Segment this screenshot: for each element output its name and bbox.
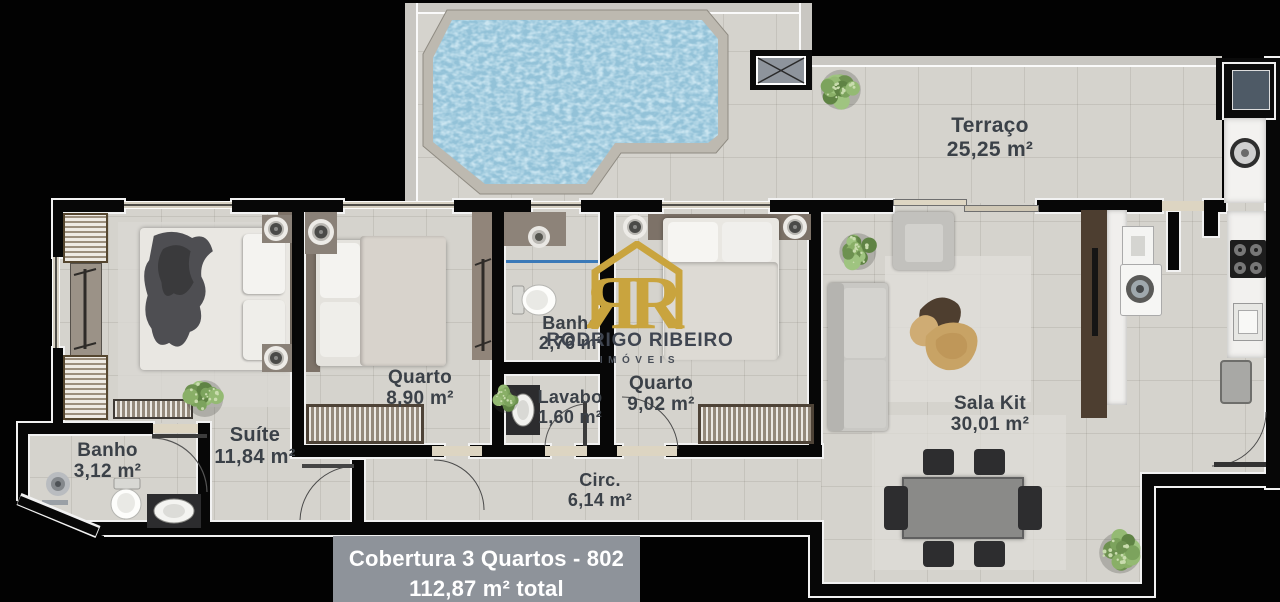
svg-text:R: R xyxy=(629,261,685,329)
